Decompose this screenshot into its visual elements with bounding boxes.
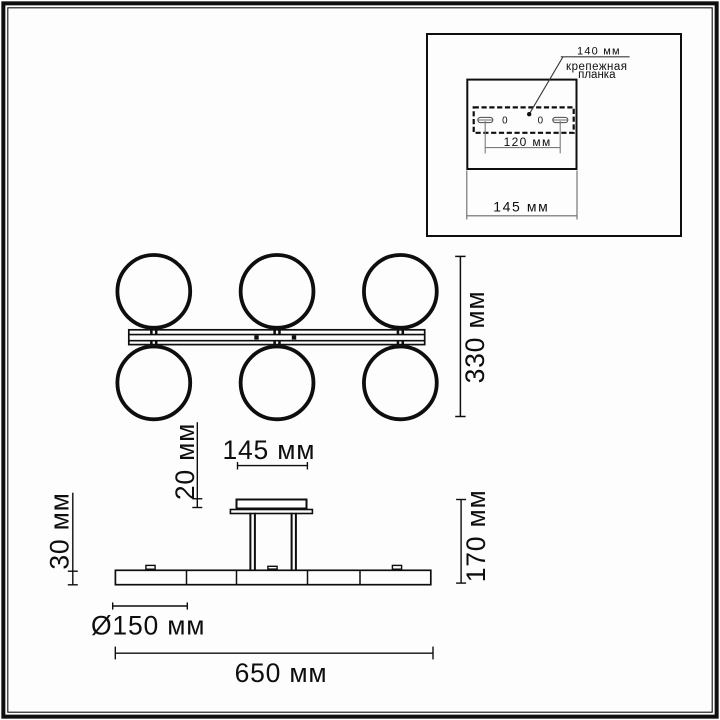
svg-text:650 мм: 650 мм [235, 658, 328, 688]
svg-text:планка: планка [578, 69, 616, 81]
svg-text:Ø150 мм: Ø150 мм [91, 611, 205, 641]
svg-text:170 мм: 170 мм [461, 489, 491, 582]
svg-text:30 мм: 30 мм [45, 492, 75, 569]
svg-text:120 мм: 120 мм [504, 135, 552, 149]
svg-text:145 мм: 145 мм [493, 198, 549, 214]
svg-text:0: 0 [538, 116, 544, 127]
svg-text:330 мм: 330 мм [460, 291, 490, 384]
svg-text:20 мм: 20 мм [170, 423, 200, 500]
svg-text:0: 0 [502, 116, 508, 127]
svg-text:140 мм: 140 мм [577, 45, 621, 57]
svg-text:145 мм: 145 мм [222, 435, 315, 465]
